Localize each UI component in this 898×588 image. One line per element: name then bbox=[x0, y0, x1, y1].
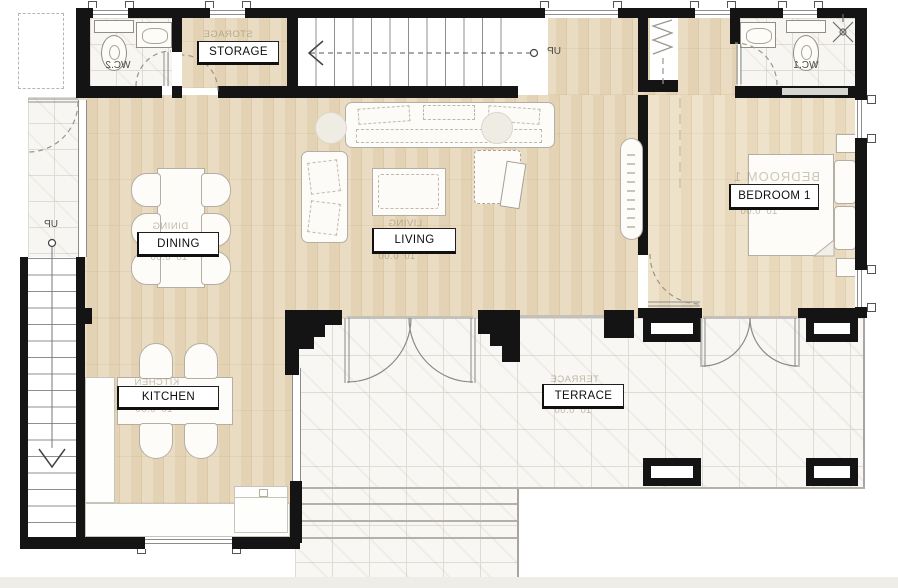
side-table-round bbox=[481, 112, 513, 144]
wall-stub bbox=[172, 86, 182, 98]
pillow bbox=[834, 160, 856, 204]
corridor-terrace-edge bbox=[520, 315, 604, 318]
radiator bbox=[620, 138, 643, 240]
kitchen-counter-west bbox=[85, 377, 115, 503]
room-label-storage: STORAGE bbox=[197, 41, 279, 65]
window-bracket bbox=[867, 134, 876, 143]
room-label-kitchen: KITCHEN bbox=[117, 386, 219, 410]
coffee-table-inner bbox=[378, 174, 439, 209]
wall-wc1-left bbox=[730, 18, 740, 44]
loveseat-cushion bbox=[307, 200, 341, 235]
toilet-bowl-inner bbox=[801, 45, 812, 60]
kitchen-chair bbox=[184, 423, 218, 459]
main-staircase bbox=[297, 18, 518, 88]
kitchen-east-glazing bbox=[292, 368, 301, 481]
window bbox=[210, 8, 245, 18]
wall-top bbox=[76, 8, 867, 18]
wall-stair-left bbox=[287, 18, 298, 86]
kitchen-chair bbox=[184, 343, 218, 379]
entry-porch-floor bbox=[28, 97, 78, 257]
side-table-round bbox=[315, 112, 347, 144]
sink-divider bbox=[235, 497, 287, 498]
window-bracket bbox=[867, 265, 876, 274]
wc1-label: WC.1 bbox=[784, 60, 828, 71]
wall-bottom-west bbox=[20, 537, 145, 549]
sink bbox=[740, 22, 776, 48]
toilet-tank bbox=[94, 20, 134, 33]
terrace-step-line bbox=[295, 503, 517, 505]
living-door-sill bbox=[347, 316, 473, 319]
wall-storage-bottom bbox=[218, 86, 298, 98]
ghost-label-dining: DINING bbox=[152, 221, 188, 232]
room-label-bedroom1: BEDROOM 1 bbox=[729, 184, 819, 210]
room-label-terrace: TERRACE bbox=[542, 384, 624, 409]
wall-stair-bottom bbox=[297, 86, 518, 98]
wall-wc2-right bbox=[172, 18, 182, 52]
sofa-cushion bbox=[423, 105, 475, 120]
window bbox=[93, 8, 128, 18]
sink-basin bbox=[142, 28, 168, 44]
wardrobe bbox=[650, 18, 678, 82]
window bbox=[855, 100, 867, 138]
sink bbox=[136, 22, 172, 48]
dining-chair bbox=[131, 173, 161, 207]
wc2-label: WC.2 bbox=[96, 60, 140, 71]
wall-wc2-left bbox=[76, 8, 90, 97]
window-bracket bbox=[867, 95, 876, 104]
coffee-table bbox=[372, 168, 446, 216]
roof-overhang-outline bbox=[18, 13, 64, 89]
terrace-edge-line bbox=[295, 487, 865, 489]
ext-stair-up-label: UP bbox=[38, 219, 58, 230]
bedroom-door-sill bbox=[703, 316, 797, 319]
wall-wardrobe-left bbox=[638, 18, 648, 82]
wall-kitchen-east bbox=[290, 481, 302, 543]
page-bottom-strip bbox=[0, 577, 898, 588]
terrace-step-line bbox=[295, 537, 517, 539]
window-bracket bbox=[867, 303, 876, 312]
stair-up-label: UP bbox=[541, 46, 561, 57]
terrace-pillar bbox=[643, 458, 701, 486]
floor-plan: STORAGE 10' 0.00 DINING 10' 0.00 LIVING … bbox=[0, 0, 898, 588]
kitchen-chair bbox=[139, 343, 173, 379]
room-label-dining: DINING bbox=[137, 232, 219, 257]
porch-glazing bbox=[78, 100, 87, 257]
dining-chair bbox=[201, 173, 231, 207]
wall-wardrobe-foot bbox=[638, 80, 678, 92]
nightstand bbox=[836, 258, 857, 277]
window bbox=[855, 270, 867, 307]
terrace-pillar bbox=[643, 315, 701, 342]
terrace-pillar bbox=[806, 458, 858, 486]
wall-ext-stair-left bbox=[20, 257, 28, 549]
sofa-large bbox=[345, 102, 555, 148]
window bbox=[545, 8, 618, 18]
faucet bbox=[259, 489, 268, 497]
exterior-staircase bbox=[28, 258, 76, 537]
sofa-seat bbox=[356, 129, 542, 143]
window bbox=[783, 8, 817, 18]
kitchen-sink-unit bbox=[234, 486, 288, 533]
wall-pier bbox=[76, 308, 92, 324]
toilet-tank bbox=[786, 20, 826, 33]
toilet-bowl-inner bbox=[109, 45, 120, 60]
sofa-cushion bbox=[358, 105, 411, 125]
wall-ext-stair-right bbox=[76, 257, 85, 549]
pillow bbox=[834, 206, 856, 250]
wall-wc2-bottom bbox=[76, 86, 162, 98]
radiator-fins bbox=[627, 147, 635, 231]
kitchen-window bbox=[145, 537, 232, 549]
sink-basin bbox=[746, 28, 772, 44]
room-label-living: LIVING bbox=[372, 228, 456, 254]
ghost-label-storage: STORAGE bbox=[203, 29, 253, 40]
loveseat bbox=[301, 151, 348, 243]
nightstand bbox=[836, 134, 857, 153]
ghost-label-bedroom: BEDROOM 1 bbox=[733, 169, 820, 184]
pillar-corridor-corner bbox=[604, 310, 634, 338]
wc1-threshold bbox=[782, 88, 848, 95]
window bbox=[695, 8, 730, 18]
terrace-step-line bbox=[295, 520, 517, 522]
loveseat-cushion bbox=[307, 159, 341, 194]
terrace-pillar bbox=[806, 315, 858, 342]
kitchen-chair bbox=[139, 423, 173, 459]
